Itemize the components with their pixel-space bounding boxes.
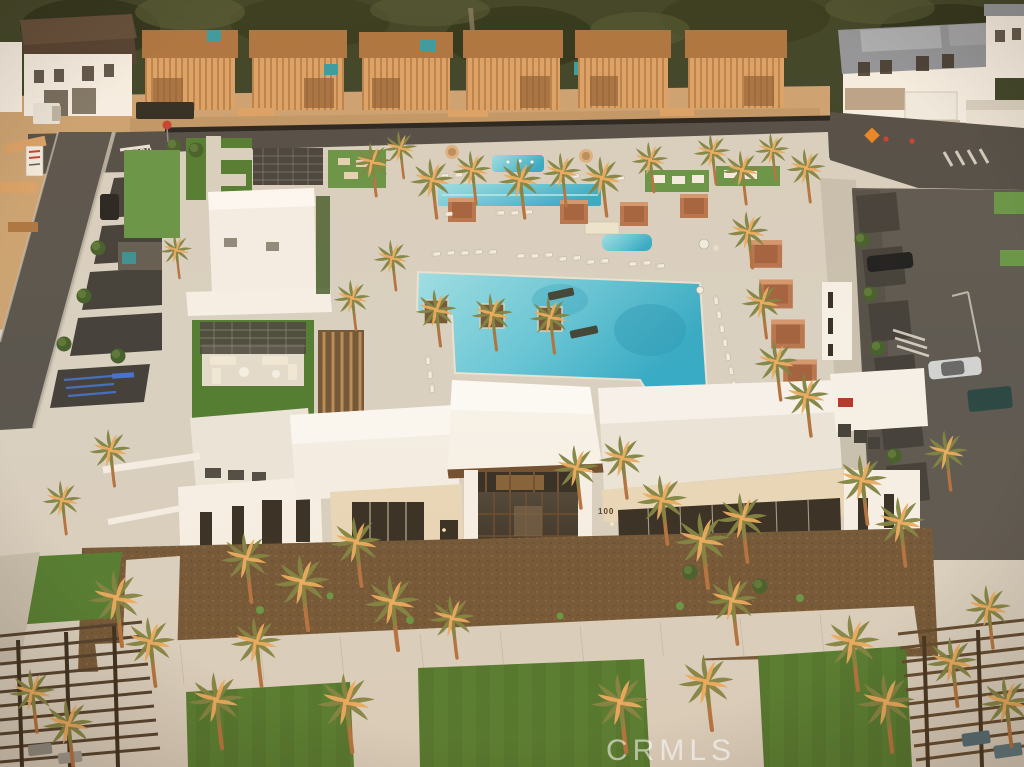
vignette xyxy=(0,0,1024,767)
aerial-photo-community-amenity-center: STOP xyxy=(0,0,1024,767)
scene-canvas: STOP xyxy=(0,0,1024,767)
crmls-watermark: CRMLS xyxy=(606,734,736,767)
